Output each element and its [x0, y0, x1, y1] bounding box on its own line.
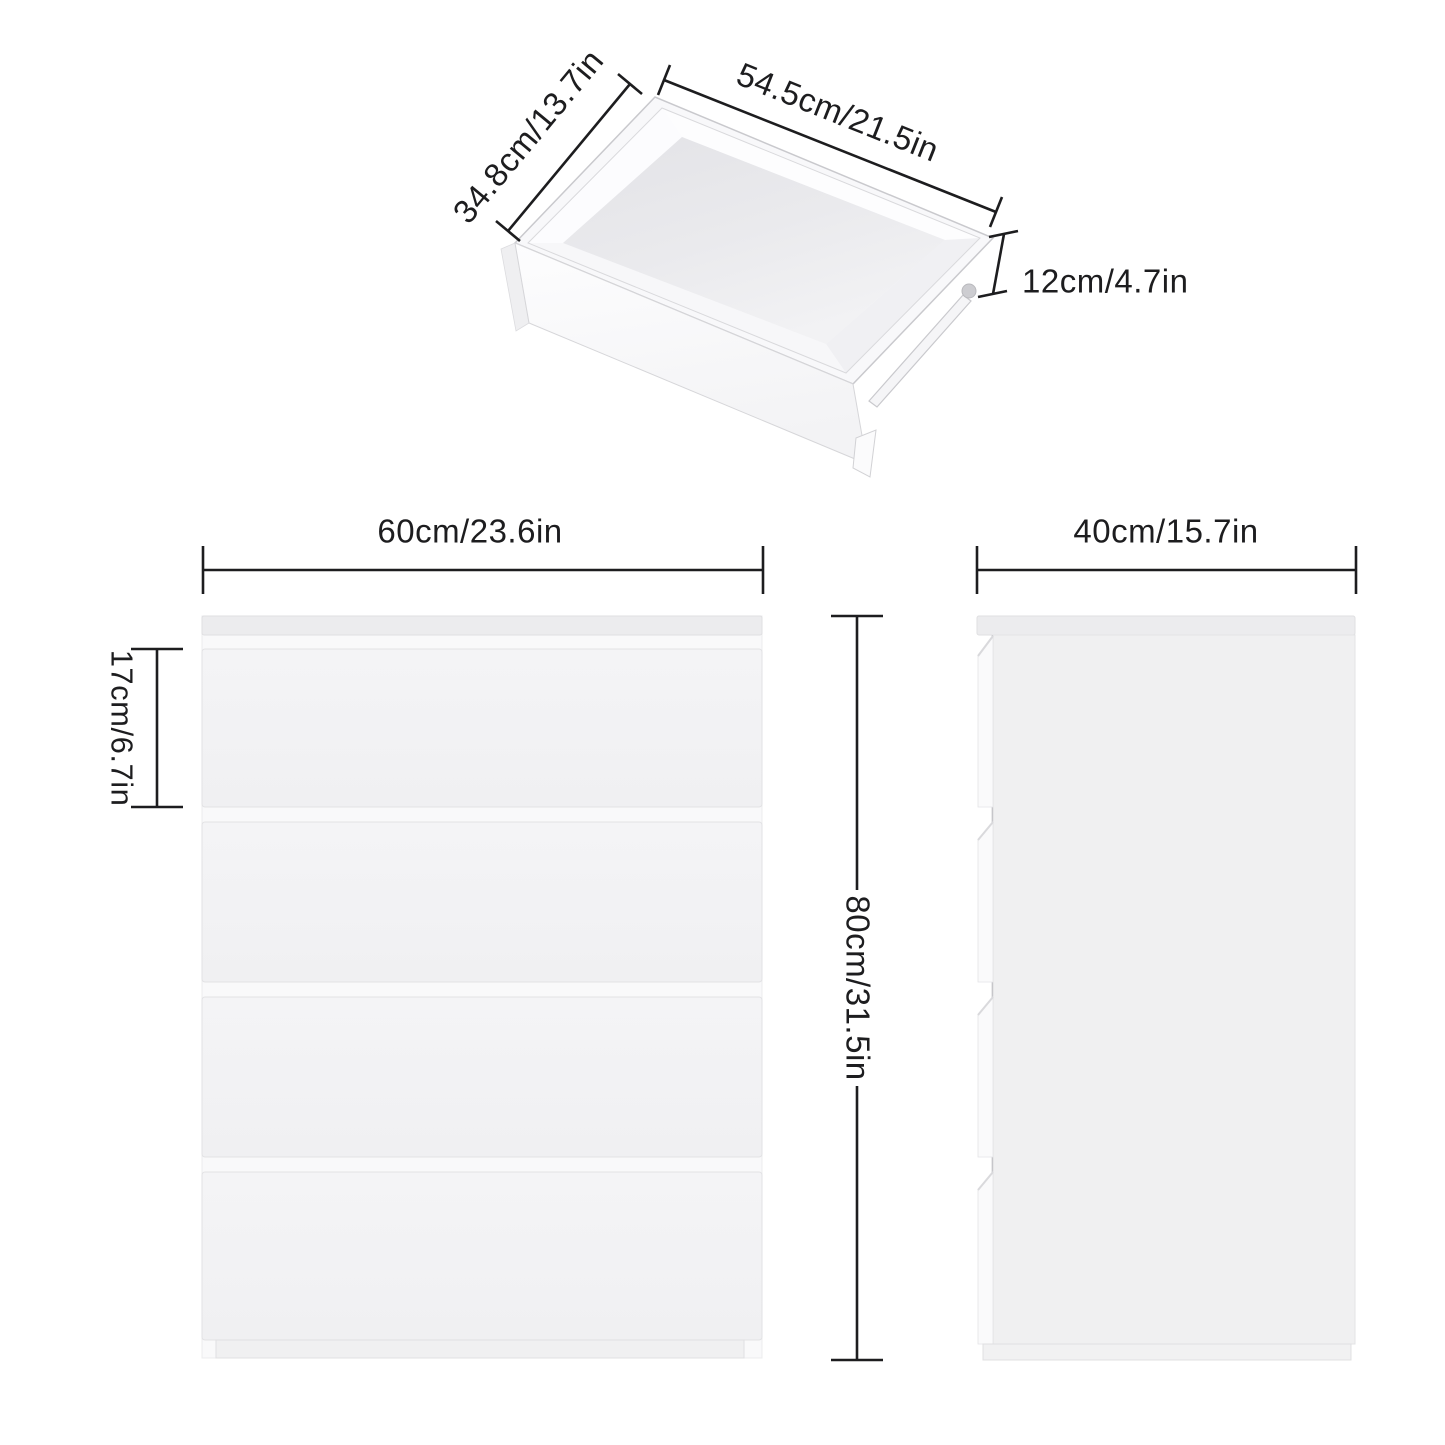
cabinet-width-label: 60cm/23.6in — [377, 513, 562, 550]
side-view — [977, 616, 1355, 1360]
front-base-strip — [216, 1340, 744, 1358]
side-base-strip — [983, 1344, 1351, 1360]
side-top-panel — [977, 616, 1355, 635]
drawer-front-height-label: 17cm/6.7in — [105, 650, 140, 807]
front-drawer-3 — [202, 997, 762, 1157]
side-drawer-edge-4 — [978, 1172, 993, 1344]
cabinet-depth-label: 40cm/15.7in — [1073, 513, 1258, 550]
cabinet-height-label: 80cm/31.5in — [840, 895, 877, 1080]
front-drawer-2 — [202, 822, 762, 982]
side-drawer-edge-1 — [978, 636, 993, 807]
front-view — [202, 616, 762, 1358]
product-dimension-diagram: 34.8cm/13.7in 54.5cm/21.5in 12cm/4.7in 6… — [0, 0, 1445, 1445]
front-top-panel — [202, 616, 762, 635]
front-drawer-1 — [202, 649, 762, 807]
side-drawer-edge-3 — [978, 997, 993, 1157]
side-drawer-edge-2 — [978, 822, 993, 982]
cabinet-depth-dimension — [977, 546, 1356, 594]
cabinet-width-dimension — [203, 546, 763, 594]
drawer-height-label: 12cm/4.7in — [1022, 263, 1188, 300]
diagram-svg: 34.8cm/13.7in 54.5cm/21.5in 12cm/4.7in 6… — [0, 0, 1445, 1445]
drawer-slide-peg — [962, 284, 976, 298]
front-drawer-4 — [202, 1172, 762, 1340]
side-main-panel — [992, 635, 1355, 1344]
